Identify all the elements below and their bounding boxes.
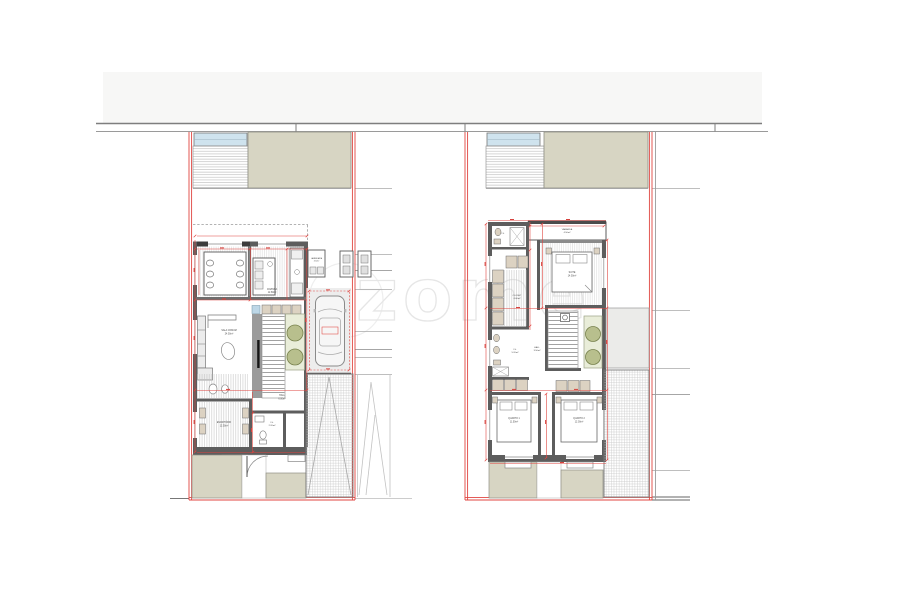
floorplan-sheet: { "watermark": { "text": "zome" }, "colo… [0,0,900,597]
sofa [198,316,206,368]
hall-cabinet-tiles [252,305,301,314]
room-area-varanda: 4.50m² [564,231,571,234]
right-patio-beige-top [544,132,648,188]
office-room: ESCRITÓRIO 12.50m² [199,402,249,447]
right-yard-path [537,462,561,498]
right-pergola-hatch [486,146,544,188]
room-area-escritorio: 12.50m² [220,424,229,427]
room-label-is-top: I.S. [501,233,504,235]
left-yard-beige-a [192,455,242,498]
right-plot: VARANDA 4.50m² [465,132,652,500]
staircase-right [548,311,578,368]
car [314,296,347,366]
left-driveway [306,374,353,497]
room-label-escritorio: ESCRITÓRIO [217,421,232,424]
entry-step-2 [288,455,305,462]
kitchen-counter [290,248,304,297]
room-area-closet: 6.00m² [514,297,521,300]
room-label-varanda: VARANDA [562,228,573,231]
left-plot: COZINHA 12.80m² LAVANDARIA 3.50m² [189,132,371,500]
deck-strip [197,374,248,398]
room-area-is-left: 2.20m² [269,424,276,427]
room-label-quarto1: QUARTO 1 [508,417,520,420]
planter-right [584,316,602,368]
room-area-sala: 24.50m² [225,332,234,335]
room-label-sala: SALA COMUM [221,329,236,332]
balcony: VARANDA 4.50m² [528,221,606,241]
room-label-is-mid: I.S. [513,349,517,351]
roof-overhang-dashed [193,225,308,244]
room-label-hall-left: HALL [279,394,285,397]
room-area-cozinha: 12.80m² [268,291,277,294]
right-yard-beige-b [561,470,603,498]
room-label-closet: CLOSET [513,295,522,297]
suite: SUITE 14.50m² [540,243,602,305]
planter-left [286,314,305,370]
step-b2 [567,462,593,468]
room-area-hall-left: 6.00m² [278,397,285,400]
room-label-cozinha: COZINHA [267,288,278,291]
roof-terrace [606,308,649,368]
left-patio-beige-top [248,132,351,188]
right-driveway [604,370,649,497]
bedroom-2: QUARTO 2 12.00m² [555,395,602,455]
room-area-hall-right: 3.50m² [534,349,541,352]
bedroom-1: QUARTO 1 11.50m² [492,395,538,455]
left-yard-beige-b [266,473,306,498]
room-area-quarto2: 12.00m² [575,420,584,423]
bathroom-mid: I.S. 5.20m² [492,330,528,377]
room-label-suite: SUITE [569,272,576,274]
neighbour-driveway-marks [358,374,391,497]
plan-drawing: zome [0,0,900,597]
room-area-quarto1: 11.50m² [510,420,518,423]
room-area-is-mid: 5.20m² [512,351,519,354]
carport [306,288,351,374]
laundry-closet: LAVANDARIA 3.50m² [308,250,325,277]
room-label-quarto2: QUARTO 2 [573,417,585,420]
room-area-lavandaria: 3.50m² [314,260,320,263]
living-room: SALA COMUM 24.50m² [197,310,248,380]
left-pergola-hatch [193,146,248,188]
room-label-is-left: I.S. [270,422,274,424]
street-band [96,72,768,132]
room-area-suite: 14.50m² [568,274,577,277]
wc-ground: I.S. 2.20m² [252,414,283,448]
step-b1 [505,462,531,468]
bathroom-top: I.S. [492,226,526,247]
room-label-hall-right: HALL [534,346,540,349]
hall-upper: HALL 3.50m² [534,346,541,352]
dining-table-set [204,252,246,295]
stair-arrow [257,340,259,368]
